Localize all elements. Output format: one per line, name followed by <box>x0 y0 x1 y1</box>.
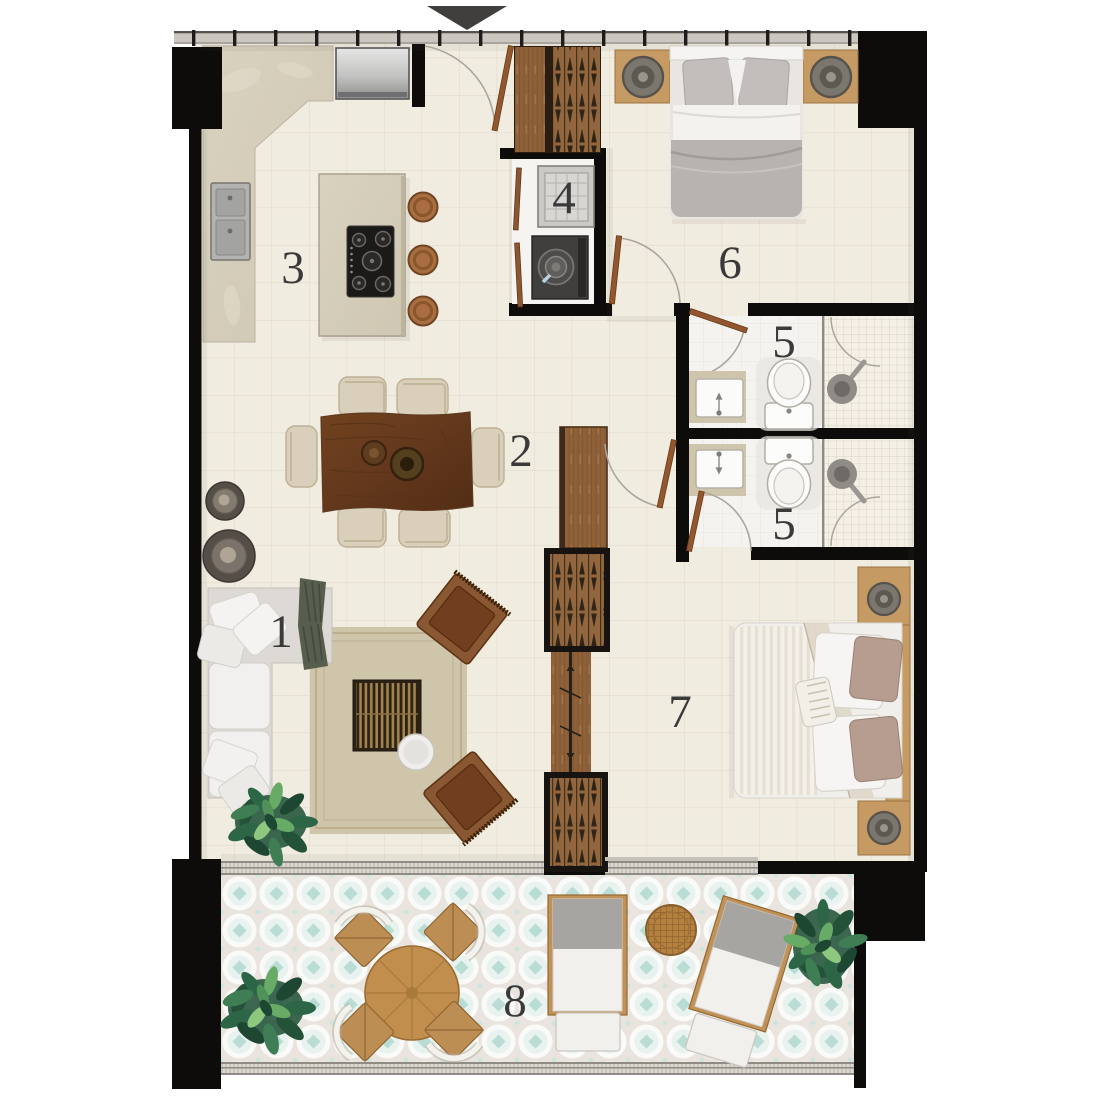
svg-text:7: 7 <box>668 686 692 738</box>
svg-text:4: 4 <box>552 172 576 224</box>
svg-text:2: 2 <box>509 425 533 477</box>
svg-text:6: 6 <box>718 237 742 289</box>
svg-text:5: 5 <box>772 498 796 550</box>
svg-text:1: 1 <box>269 606 293 658</box>
svg-text:3: 3 <box>281 242 305 294</box>
svg-text:8: 8 <box>503 975 527 1027</box>
svg-text:5: 5 <box>772 316 796 368</box>
